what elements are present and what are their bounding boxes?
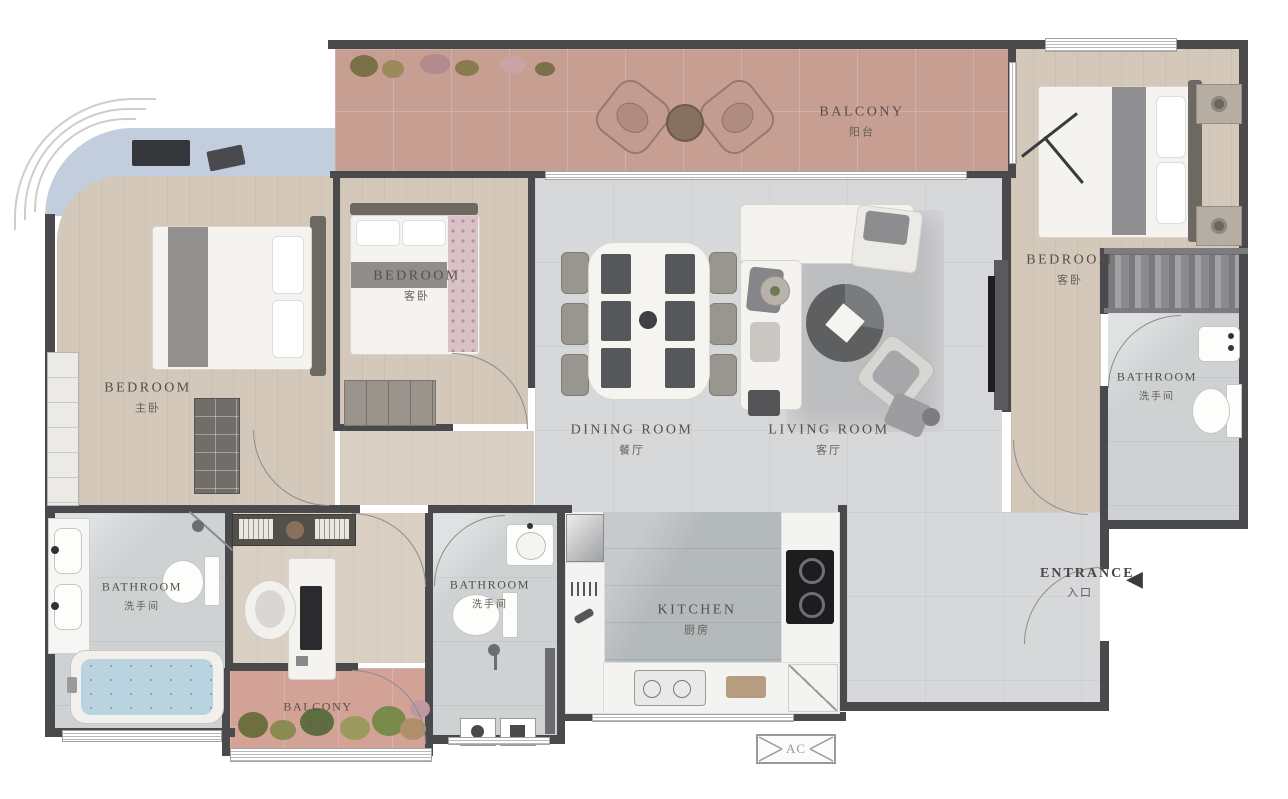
shower-glass [545,648,555,734]
place-setting [665,348,695,388]
side-table-round [760,276,790,306]
label-bedroom-master: BEDROOM 主卧 [104,381,192,416]
tv-console [994,260,1008,410]
corner-cabinet [788,664,838,712]
label-dining-room: DINING ROOM 餐厅 [571,423,694,458]
dining-chair [709,303,737,345]
study-bookshelf [232,514,356,546]
room-name: LIVING ROOM [768,423,889,439]
room-name: BALCONY [283,700,352,715]
right-bed-pillow [1156,96,1186,158]
cooktop [786,550,834,624]
double-sink [634,670,706,706]
label-bathroom-mid: BATHROOM 洗手间 [450,578,530,611]
shower-arm [494,654,497,670]
bay-desk-item [132,140,190,166]
wall [328,40,1016,49]
label-bedroom-guest: BEDROOM 客卧 [373,269,461,304]
dish-rack [571,582,597,596]
table-centerpiece [639,311,657,329]
window [448,737,550,745]
window [1045,38,1177,52]
place-setting [665,254,695,294]
planter-plant [500,56,526,74]
sofa-chaise [850,204,923,274]
wall [534,505,572,513]
place-setting [601,348,631,388]
master-bed-runner [168,227,208,367]
shower-head [192,520,204,532]
desk-accessory [296,656,308,666]
master-wardrobe [47,352,79,506]
wall [1100,520,1248,529]
right-bed-runner [1112,87,1146,235]
label-living-room: LIVING ROOM 客厅 [768,423,889,458]
label-kitchen: KITCHEN 厨房 [658,603,737,638]
guest-bed-headboard [350,203,478,215]
entrance-text: ENTRANCE [1040,566,1120,582]
window [592,714,794,722]
wall [1100,529,1109,569]
room-name-cn: 客卧 [373,288,461,304]
place-setting [601,301,631,341]
coffee-table [806,284,884,362]
dining-chair [709,252,737,294]
room-name-cn: 洗手间 [450,596,530,611]
tv-screen [988,276,995,392]
place-setting [601,254,631,294]
nightstand [1196,206,1242,246]
partition [1104,248,1248,254]
room-name-cn: 主卧 [104,400,192,416]
room-name-cn: 阳台 [819,124,904,140]
ac-unit: AC [756,734,836,764]
window [1009,62,1017,164]
right-bed-pillow [1156,162,1186,224]
floor-plan: BALCONY 阳台 BEDROOM 主卧 BEDROOM 客卧 DINING … [0,0,1288,799]
partition [1104,308,1239,313]
sofa-pillow [750,322,780,362]
fridge [566,514,604,562]
dining-chair [561,303,589,345]
room-name: DINING ROOM [571,423,694,439]
planter-plant [350,55,378,77]
room-name-cn: 洗手间 [102,598,182,613]
entrance-label: ENTRANCE 入口 [1040,566,1120,600]
room-name: BEDROOM [1026,253,1114,269]
wall [333,176,340,428]
corridor-left-floor [340,431,534,505]
closet-right [1108,254,1241,310]
dining-chair [709,354,737,396]
room-name: BATHROOM [1117,370,1197,385]
label-bedroom-right: BEDROOM 客卧 [1026,253,1114,288]
room-name: BATHROOM [102,580,182,595]
label-bathroom-right: BATHROOM 洗手间 [1117,370,1197,403]
planter-plant [382,60,404,78]
sliding-glass-door [545,171,967,180]
dining-chair [561,354,589,396]
wall [1100,386,1108,520]
room-name: BEDROOM [104,381,192,397]
room-name-cn: 厨房 [658,622,737,638]
room-name: BALCONY [819,105,904,121]
room-name-cn: 客卧 [1026,272,1114,288]
entrance-arrow-icon: ◀ [1126,566,1143,592]
nightstand [1196,84,1242,124]
wall [838,702,1104,711]
washbasin [1198,326,1240,362]
guest-bed-pillow [356,220,400,246]
cutting-board [726,676,766,698]
washbasin [506,524,554,566]
balcony-railing [230,748,432,762]
wall [45,505,227,513]
master-bed-pillow [272,236,304,294]
guest-cabinet [344,380,436,426]
floor-lamp [922,408,940,426]
balcony-side-table [666,104,704,142]
toilet-tank [204,556,220,606]
wall [227,505,360,513]
washbasin [54,584,82,630]
desk-monitor [300,586,322,650]
planter-plant [535,62,555,76]
master-bed-pillow [272,300,304,358]
ac-label: AC [784,741,808,757]
dining-chair [561,252,589,294]
wall [528,176,535,388]
place-setting [665,301,695,341]
room-name: BATHROOM [450,578,530,593]
entrance-text-cn: 入口 [1040,584,1120,600]
desk-chair [244,580,296,640]
room-name-cn: 客厅 [768,442,889,458]
wall [425,513,433,670]
bathtub [70,650,224,724]
label-balcony-bottom: BALCONY 阳台 [283,700,352,733]
label-bathroom-left: BATHROOM 洗手间 [102,580,182,613]
planter-plant [455,60,479,76]
washbasin [54,528,82,574]
window [62,730,222,742]
wall [557,513,565,735]
side-table-dark [748,390,780,416]
master-dresser [194,398,240,494]
wall [1100,641,1109,711]
room-name-cn: 餐厅 [571,442,694,458]
room-name: BEDROOM [373,269,461,285]
planter-plant [420,54,450,74]
label-balcony-top: BALCONY 阳台 [819,105,904,140]
guest-bed-pillow [402,220,446,246]
toilet-bowl [1192,388,1230,434]
room-name: KITCHEN [658,603,737,619]
kitchen-center-marble [603,512,781,662]
room-name-cn: 阳台 [283,718,352,733]
master-bed-headboard [310,216,326,376]
room-name-cn: 洗手间 [1117,388,1197,403]
balcony-plant [238,712,268,738]
